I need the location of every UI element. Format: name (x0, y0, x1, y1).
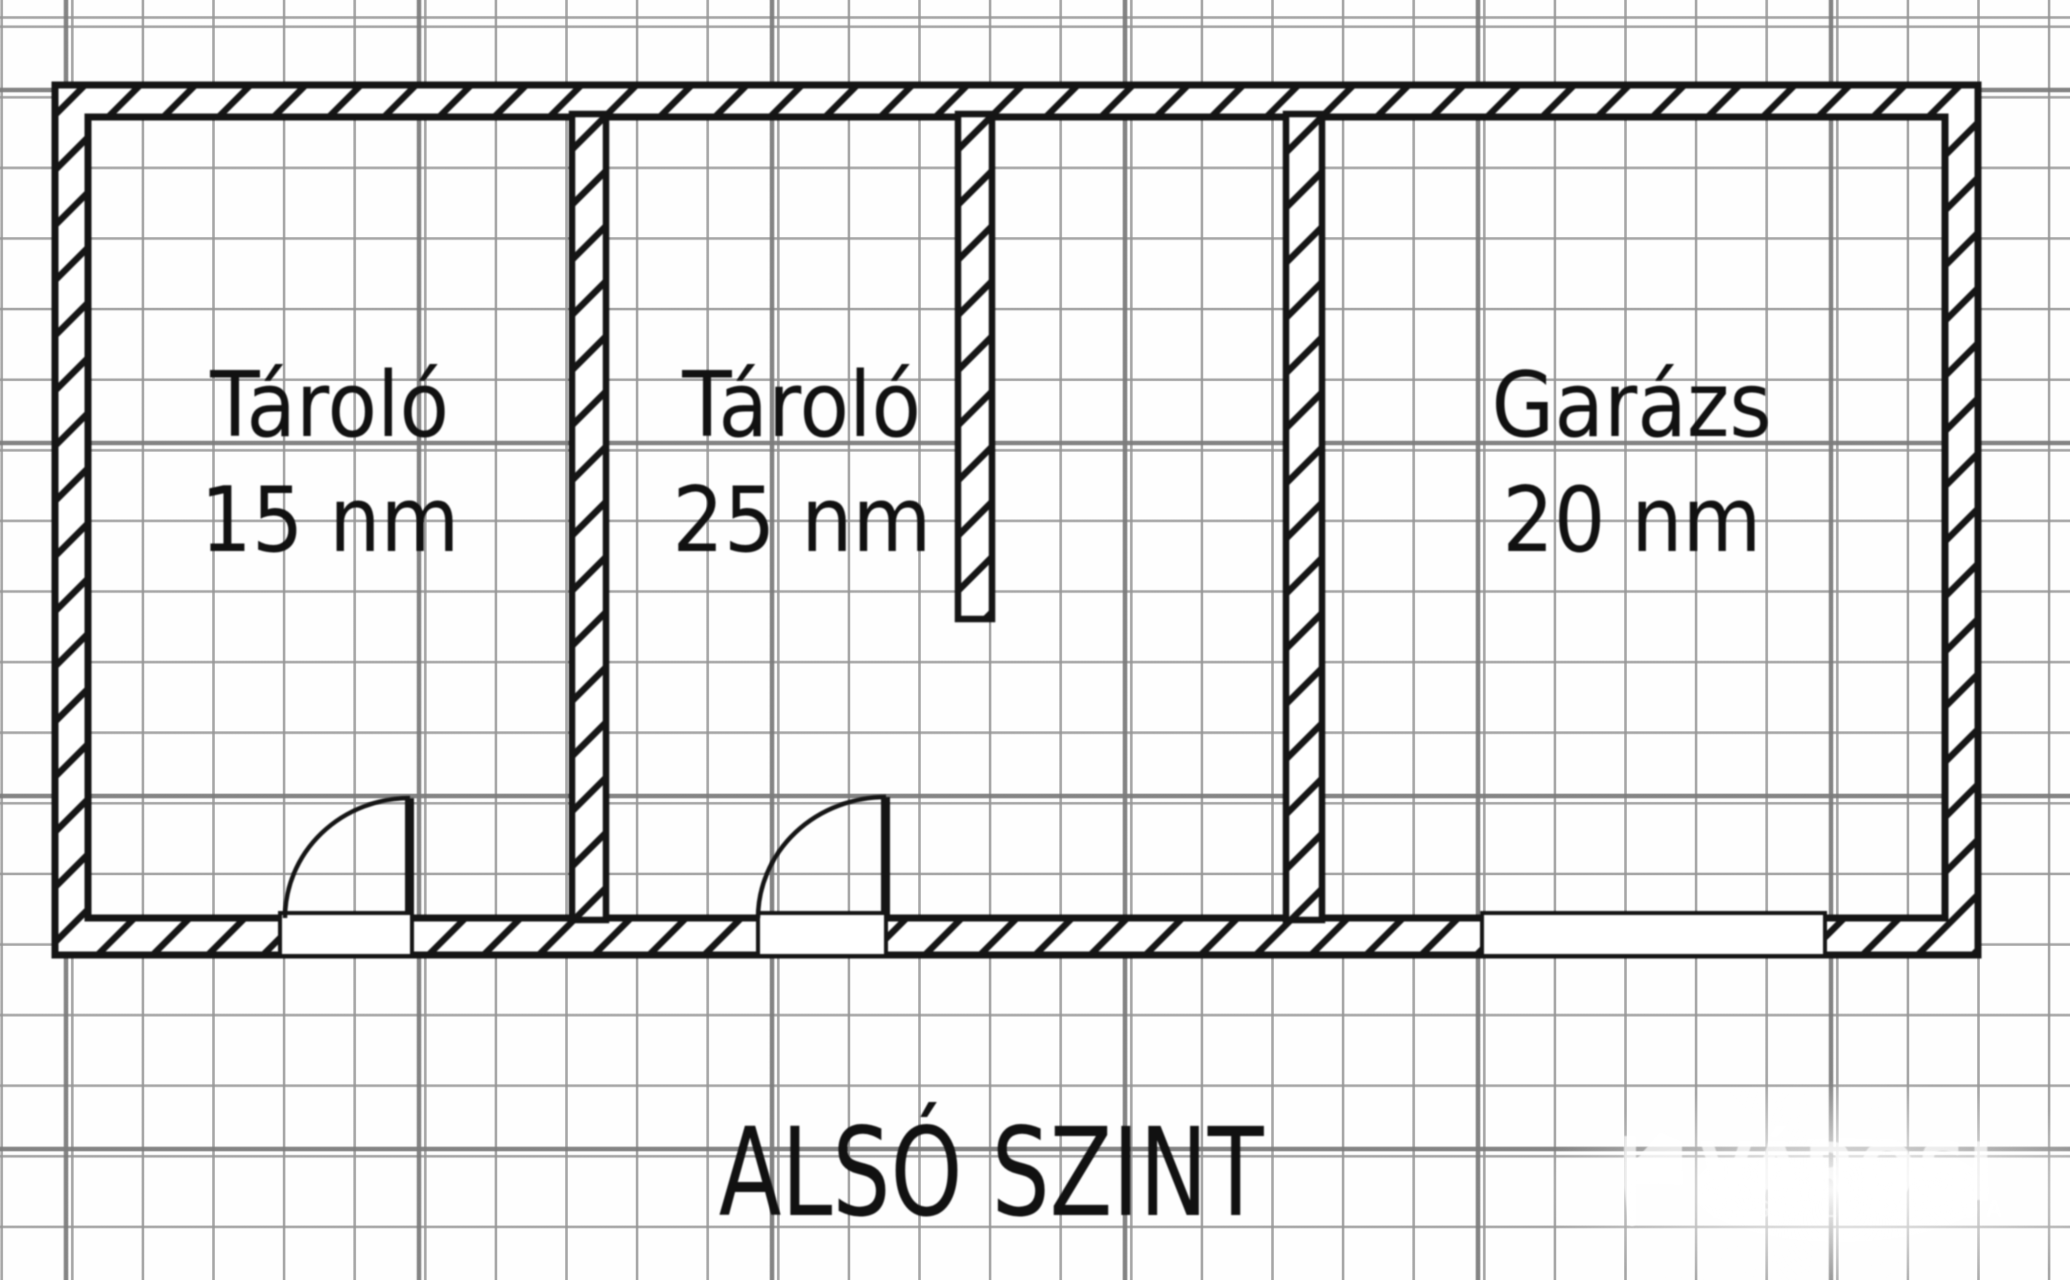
room-3-name: Garázs (1492, 348, 1772, 463)
door-2-swing-arc-icon (758, 797, 886, 918)
door-1-swing-arc-icon (285, 798, 410, 918)
partition-wall-2 (1286, 114, 1322, 920)
door-opening-1 (280, 913, 412, 956)
door-opening-2 (758, 913, 886, 956)
room-2-area: 25 nm (672, 463, 931, 578)
room-2-name: Tároló (683, 348, 922, 463)
room-label-garazs: Garázs 20 nm (1422, 348, 1842, 578)
level-title: ALSÓ SZINT (628, 1112, 1248, 1234)
room-1-name: Tároló (211, 348, 450, 463)
room-1-area: 15 nm (200, 463, 459, 578)
garage-door-opening (1482, 913, 1825, 956)
room-label-tarolo-2: Tároló 25 nm (592, 348, 1012, 578)
floor-plan-page: Tároló 15 nm Tároló 25 nm Garázs 20 nm A… (0, 0, 2070, 1280)
room-label-tarolo-1: Tároló 15 nm (120, 348, 540, 578)
watermark-logo-icon (1620, 1126, 1686, 1226)
room-3-area: 20 nm (1502, 463, 1761, 578)
watermark-subtitle: INGATLANIRODA (1712, 1198, 2011, 1223)
